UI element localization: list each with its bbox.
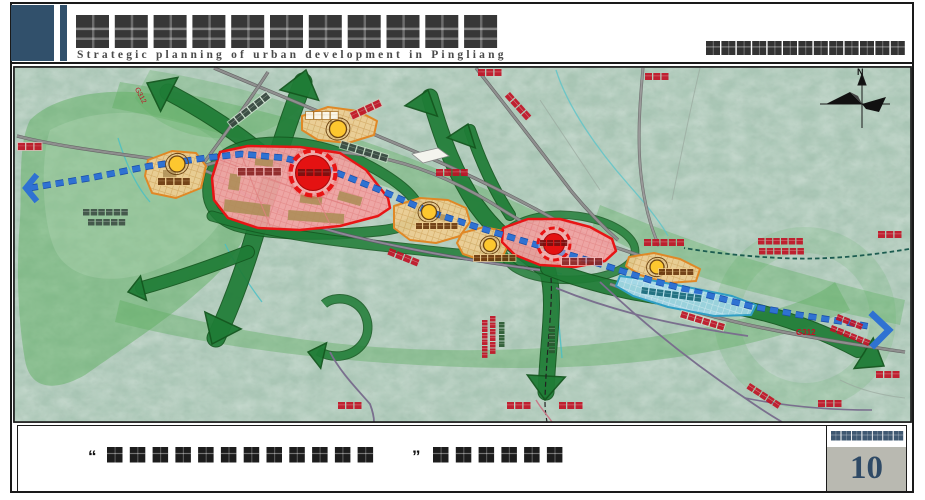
svg-text:”: ”	[412, 447, 421, 466]
svg-text:G312: G312	[796, 328, 816, 337]
svg-text:“: “	[88, 447, 97, 466]
svg-text:N: N	[857, 67, 864, 77]
